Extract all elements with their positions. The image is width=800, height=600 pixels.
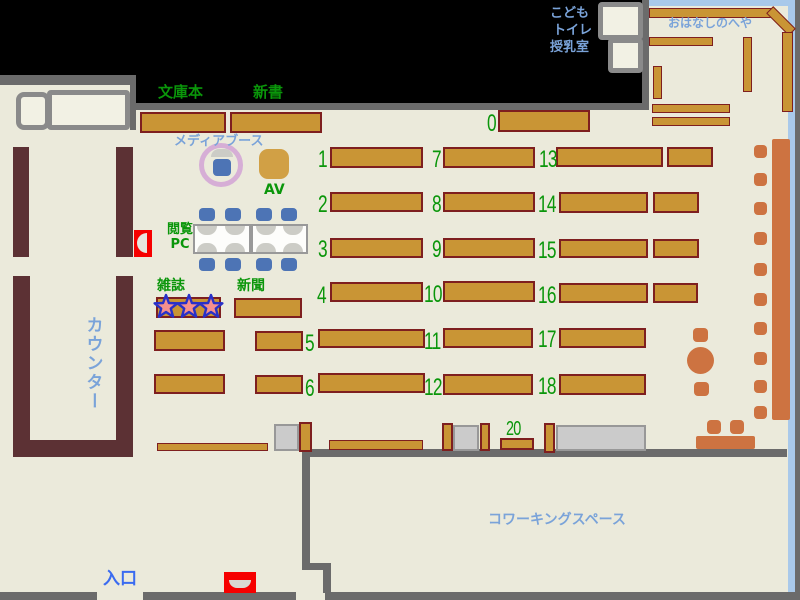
shelf-number-18: 18 [538,375,556,399]
wall-bottom-left [0,592,97,600]
shelf-15-extension [653,239,699,258]
story-room-label: おはなしのへや [668,17,752,31]
shelf-13-extension [667,147,713,167]
shelf-16-extension [653,283,698,303]
pc-chair [225,258,241,271]
shelf-10 [443,281,535,302]
shelf-7 [443,147,535,168]
gate-box-large [47,90,130,130]
shelf-number-9: 9 [432,238,441,262]
small-shelf-row6-a [154,374,225,394]
star-icon [155,295,178,317]
counter-bottom-bar [13,440,133,457]
shelf-number-8: 8 [432,193,441,217]
shelf-number-1: 1 [318,148,327,172]
media-booth-label: メディアブース [174,135,263,150]
gate-box-small [16,92,50,130]
pc-station-mark [197,243,217,252]
shelf-13 [556,147,663,167]
shelf-number-15: 15 [538,239,556,263]
window-seat [754,202,767,215]
toilet-room-lower [608,38,643,73]
counter-lower-left-bar [13,276,30,457]
pc-chair [199,258,215,271]
return-slot-counter [134,230,152,257]
shelf-number-3: 3 [318,238,327,262]
shelf-number-13: 13 [539,148,557,172]
shelf-11 [443,328,533,348]
window-seat [754,322,767,335]
pc-label-line1: 閲覧 [164,223,196,238]
paperback-label: 文庫本 [158,84,203,101]
wall-coworking-jut-lower [323,570,331,593]
shelf-paperback [140,112,226,133]
shelf-number-2: 2 [318,193,327,217]
shelf-6 [318,373,425,393]
shelf-9 [443,238,535,258]
shelf-12 [443,374,533,395]
return-slot-entrance [224,572,256,593]
kids-label: こども [550,7,589,22]
counter-upper-left-bar [13,147,29,257]
low-shelf-west [157,443,268,451]
story-shelf-left-vertical [653,66,662,99]
shelf-0 [498,110,590,132]
pc-chair [256,208,272,221]
pc-chair [199,208,215,221]
shelf-16 [559,283,648,303]
corner-seat [730,420,744,434]
counter-lower-right-bar [116,276,133,457]
shinsho-label: 新書 [253,84,283,101]
shelf-number-14: 14 [538,193,556,217]
round-table-seat [694,382,709,396]
window-seat [754,263,767,276]
nursing-label: 授乳室 [550,41,589,56]
wall-bottom-middle [143,592,296,600]
newspaper-label: 新聞 [237,278,265,294]
shelf-number-6: 6 [305,377,314,401]
end-shelf-c [480,423,490,451]
wall-coworking-jut [302,563,331,570]
shelf-18 [559,374,646,395]
story-shelf-small [649,37,713,46]
low-shelf-center [329,440,423,450]
pc-chair [256,258,272,271]
newspaper-shelf [234,298,302,318]
star-icon [200,295,223,317]
story-room-top-border [648,0,800,6]
corner-table [696,436,755,449]
media-booth-desk-icon [211,149,233,157]
wall-entrance-top [0,75,135,85]
star-icon [178,295,201,317]
shelf-8 [443,192,535,212]
story-shelf-right [782,32,793,112]
round-table [687,347,714,374]
window-seat [754,293,767,306]
small-shelf-row5-a [154,330,225,351]
shelf-number-10: 10 [424,283,442,307]
shelf-3 [330,238,423,258]
pc-chair [225,208,241,221]
window-seat [754,173,767,186]
shelf-number-11: 11 [424,330,441,354]
gray-table-b [453,425,479,451]
shelf-4 [330,282,423,302]
pc-station-mark [256,243,276,252]
end-shelf-d [544,423,555,453]
shelf-14 [559,192,648,213]
shelf-2 [330,192,423,212]
magazine-stars [151,292,225,323]
end-shelf-a [299,422,312,452]
shelf-number-7: 7 [432,148,441,172]
shelf-15 [559,239,648,258]
pc-chair [281,258,297,271]
end-shelf-b [442,423,453,451]
av-booth [259,149,289,179]
toilet-room-upper [598,2,643,40]
small-shelf-row6-b [255,375,303,394]
shelf-number-20: 20 [506,419,521,439]
pc-station-mark [283,243,303,252]
library-floor-map: 文庫本 新書 メディアブース AV 閲覧 PC 雑誌 新聞 カウンター こども … [0,0,800,600]
shelf-shinsho [230,112,322,133]
gray-table-a [274,424,299,451]
window-counter-table [772,139,790,420]
shelf-number-5: 5 [305,332,314,356]
entrance-label: 入口 [103,570,137,590]
small-shelf-row5-b [255,331,303,351]
shelf-number-0: 0 [487,112,496,136]
shelf-17 [559,328,646,348]
counter-label: カウンター [82,316,102,411]
wall-coworking-left [302,449,310,570]
wall-right-edge [795,0,800,600]
pc-label: 閲覧 PC [164,223,196,253]
wall-bottom-right [325,592,800,600]
shelf-number-12: 12 [424,376,442,400]
corner-seat [707,420,721,434]
gray-table-c [556,425,646,451]
magazine-label: 雑誌 [157,278,185,294]
shelf-number-17: 17 [538,328,556,352]
pc-label-line2: PC [164,238,196,253]
wall-main-top [135,103,649,110]
av-label: AV [264,182,285,198]
story-shelf-bottom-a [652,104,730,113]
coworking-label: コワーキングスペース [488,512,626,528]
toilet-label: トイレ [553,24,592,39]
window-seat [754,352,767,365]
story-shelf-mid-vertical [743,37,752,92]
window-seat [754,232,767,245]
counter-upper-right-bar [116,147,133,257]
shelf-5 [318,329,425,348]
shelf-14-extension [653,192,699,213]
pc-chair [281,208,297,221]
return-slot-entrance-opening-icon [229,580,251,588]
window-seat [754,406,767,419]
round-table-seat [693,328,708,342]
story-shelf-bottom-b [652,117,730,126]
pc-station-mark [225,243,245,252]
shelf-number-16: 16 [538,284,556,308]
shelf-number-4: 4 [317,284,326,308]
shelf-1 [330,147,423,168]
window-seat [754,145,767,158]
media-booth-chair [213,159,231,176]
wall-toilet-right [642,0,649,107]
window-seat [754,380,767,393]
return-slot-counter-opening-icon [137,233,147,253]
